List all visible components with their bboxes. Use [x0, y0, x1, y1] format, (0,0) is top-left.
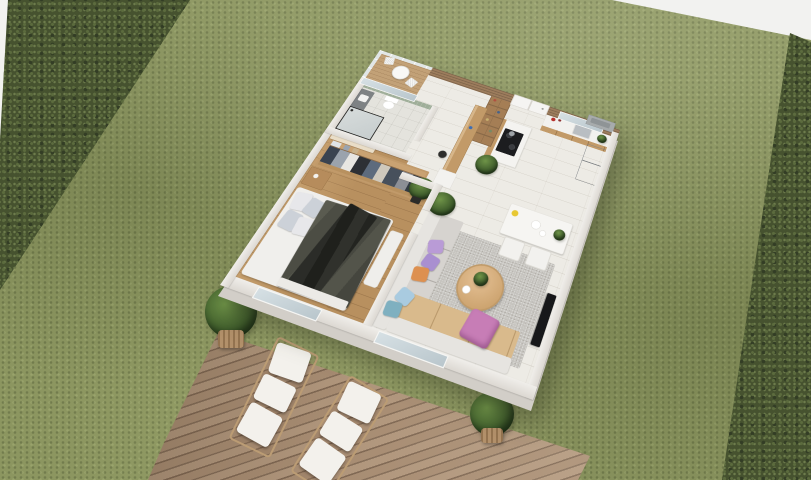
floor-plan: [220, 50, 620, 400]
house: [0, 0, 811, 480]
pillow-lilac: [427, 240, 444, 254]
vanity-sink: [357, 94, 369, 103]
scene-canvas: [0, 0, 811, 480]
